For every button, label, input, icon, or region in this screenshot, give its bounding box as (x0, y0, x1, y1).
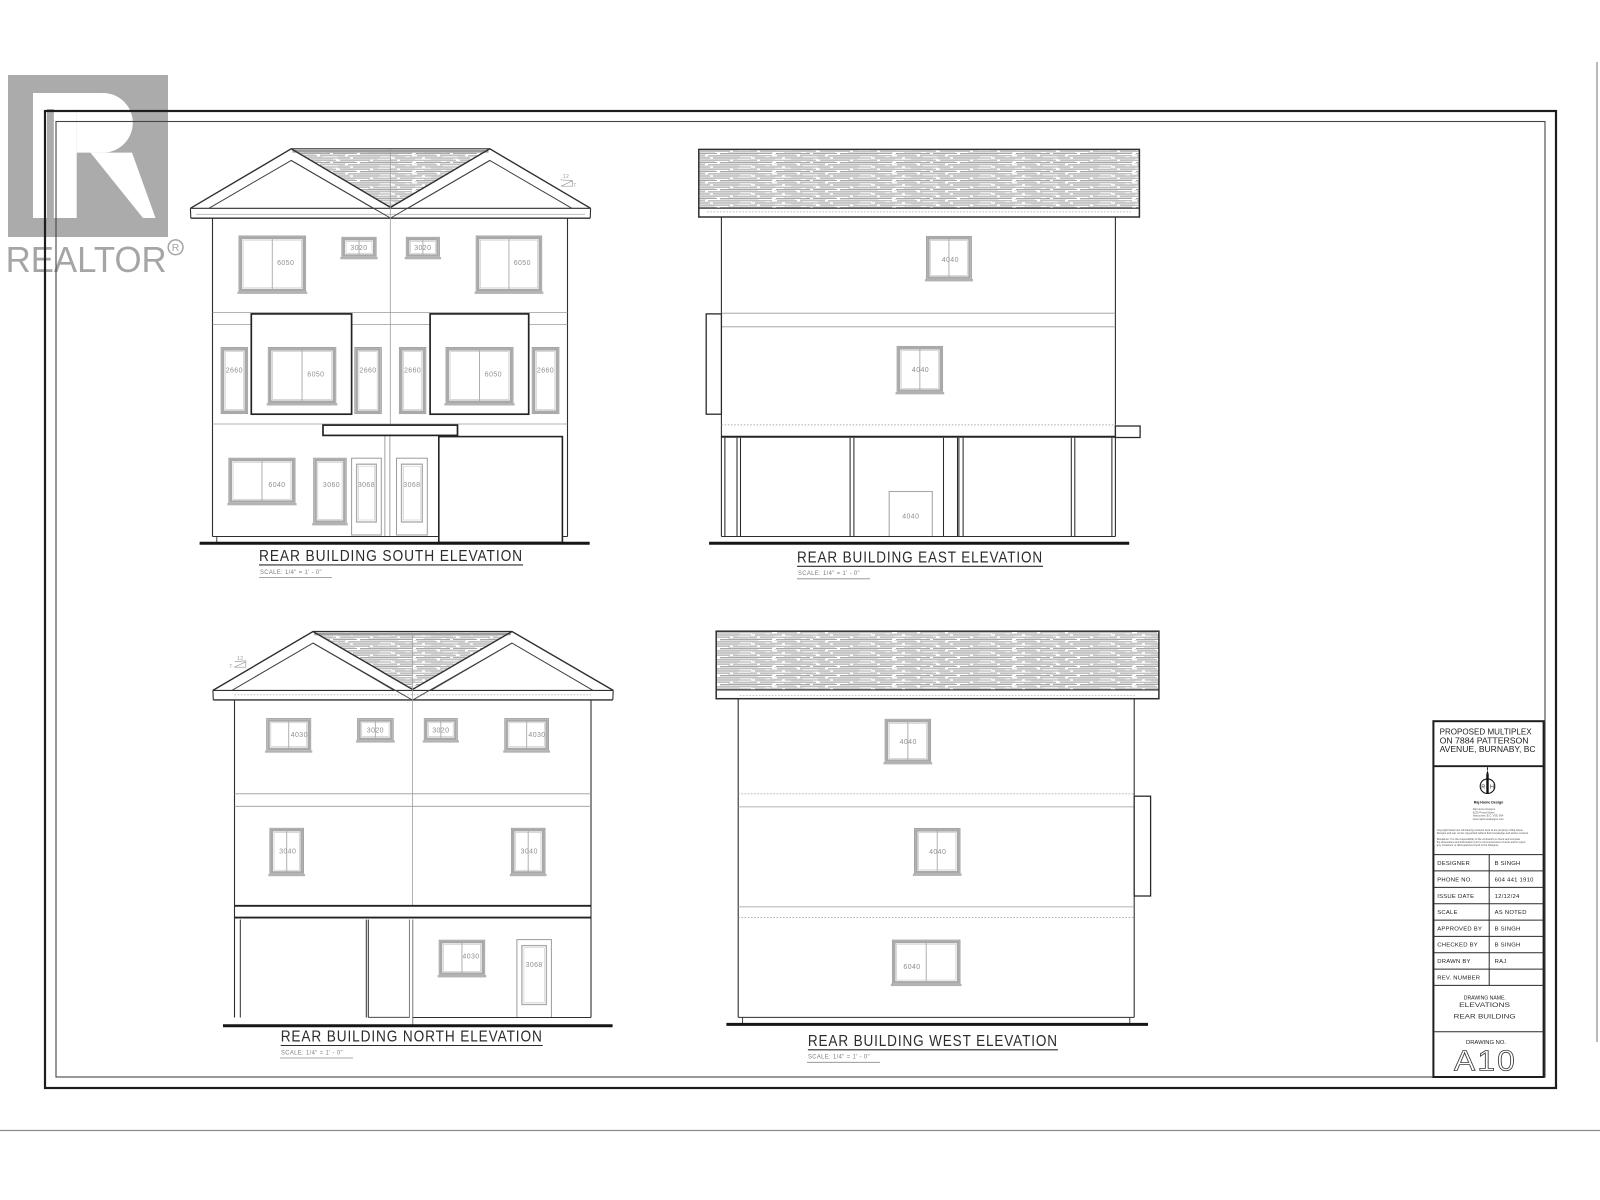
svg-text:3020: 3020 (350, 245, 367, 252)
svg-text:PROPOSED MULTIPLEX: PROPOSED MULTIPLEX (1440, 728, 1533, 737)
svg-text:any omissions or discrepancies: any omissions or discrepancies found to … (1437, 843, 1499, 847)
svg-text:4030: 4030 (462, 953, 479, 960)
svg-text:3068: 3068 (526, 962, 543, 969)
svg-text:APPROVED BY: APPROVED BY (1437, 926, 1482, 932)
svg-text:4030: 4030 (528, 732, 545, 739)
svg-text:R: R (172, 242, 180, 254)
svg-text:ON 7884 PATTERSON: ON 7884 PATTERSON (1440, 736, 1529, 745)
svg-text:CHECKED BY: CHECKED BY (1437, 943, 1478, 949)
svg-text:6050: 6050 (277, 260, 294, 267)
svg-text:R: R (1481, 785, 1485, 791)
svg-text:604 441 1910: 604 441 1910 (1495, 878, 1535, 884)
svg-text:6050: 6050 (514, 260, 531, 267)
svg-text:SCALE: 1/4" = 1' - 0": SCALE: 1/4" = 1' - 0" (260, 569, 322, 576)
svg-text:2660: 2660 (359, 367, 376, 374)
svg-text:ELEVATIONS: ELEVATIONS (1459, 1002, 1511, 1009)
svg-text:A10: A10 (1454, 1046, 1517, 1078)
svg-text:4040: 4040 (912, 367, 929, 374)
svg-text:B SINGH: B SINGH (1495, 861, 1521, 867)
svg-text:4040: 4040 (900, 739, 917, 746)
svg-text:H: H (1490, 785, 1494, 791)
svg-text:3020: 3020 (414, 245, 431, 252)
svg-text:3060: 3060 (323, 482, 340, 489)
svg-text:REAR BUILDING WEST ELEVATION: REAR BUILDING WEST ELEVATION (808, 1033, 1058, 1050)
svg-text:3040: 3040 (521, 848, 538, 855)
svg-text:3020: 3020 (432, 727, 449, 734)
svg-text:RAJ: RAJ (1495, 959, 1507, 965)
svg-text:3020: 3020 (367, 727, 384, 734)
svg-text:2660: 2660 (404, 367, 421, 374)
svg-text:ISSUE DATE: ISSUE DATE (1437, 894, 1474, 900)
svg-text:DESIGNER: DESIGNER (1437, 861, 1470, 867)
svg-text:AVENUE, BURNABY, BC: AVENUE, BURNABY, BC (1440, 745, 1536, 754)
svg-text:4030: 4030 (291, 732, 308, 739)
svg-text:Designs and can not be copywri: Designs and can not be copywrited withou… (1437, 831, 1529, 835)
svg-text:6040: 6040 (903, 964, 920, 971)
svg-text:REV. NUMBER: REV. NUMBER (1437, 975, 1480, 981)
svg-text:REAR BUILDING SOUTH ELEVATION: REAR BUILDING SOUTH ELEVATION (259, 548, 523, 565)
svg-text:B SINGH: B SINGH (1495, 926, 1521, 932)
svg-text:6050: 6050 (485, 372, 502, 379)
svg-text:12: 12 (563, 174, 569, 180)
svg-text:AS NOTED: AS NOTED (1495, 910, 1527, 916)
svg-text:6050: 6050 (307, 372, 324, 379)
svg-text:7: 7 (573, 183, 576, 189)
svg-text:4040: 4040 (929, 849, 946, 856)
svg-text:3068: 3068 (358, 482, 375, 489)
svg-text:2660: 2660 (226, 367, 243, 374)
svg-text:12/12/24: 12/12/24 (1495, 894, 1520, 900)
svg-text:2660: 2660 (537, 367, 554, 374)
svg-text:B SINGH: B SINGH (1495, 943, 1521, 949)
svg-text:4040: 4040 (942, 257, 959, 264)
svg-text:3040: 3040 (279, 848, 296, 855)
svg-text:DRAWING NAME.: DRAWING NAME. (1464, 995, 1506, 1001)
svg-text:SCALE: 1/4" = 1' - 0": SCALE: 1/4" = 1' - 0" (808, 1054, 870, 1061)
svg-text:REAR BUILDING EAST ELEVATION: REAR BUILDING EAST ELEVATION (797, 549, 1043, 566)
svg-text:4040: 4040 (902, 514, 919, 521)
svg-text:6040: 6040 (268, 482, 285, 489)
svg-text:SCALE: 1/4" = 1' - 0": SCALE: 1/4" = 1' - 0" (798, 570, 860, 577)
svg-text:7: 7 (229, 664, 232, 670)
svg-text:REAR BUILDING: REAR BUILDING (1454, 1013, 1516, 1020)
svg-text:SCALE: 1/4" = 1' - 0": SCALE: 1/4" = 1' - 0" (281, 1049, 343, 1056)
svg-text:DRAWN BY: DRAWN BY (1437, 959, 1471, 965)
svg-text:REALTOR: REALTOR (6, 239, 167, 280)
svg-text:REAR BUILDING NORTH ELEVATION: REAR BUILDING NORTH ELEVATION (281, 1029, 543, 1046)
svg-text:3068: 3068 (403, 482, 420, 489)
svg-text:SCALE: SCALE (1437, 910, 1458, 916)
svg-text:Raj Home Design: Raj Home Design (1474, 800, 1504, 804)
svg-text:www.rajhomedesigns.com: www.rajhomedesigns.com (1473, 817, 1505, 821)
svg-text:PHONE NO.: PHONE NO. (1437, 878, 1472, 884)
